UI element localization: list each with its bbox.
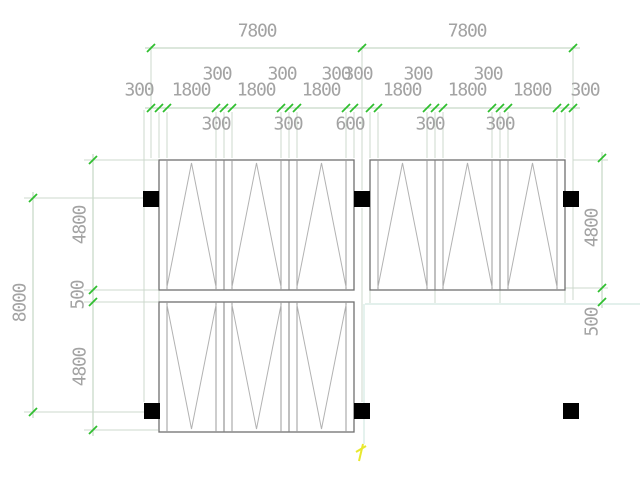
dim-4800-left-bottom: 4800 [70,347,91,386]
formwork-plan-svg: 7800780030030030030030030030018001800180… [0,0,640,480]
dim-7800-right: 7800 [448,21,487,42]
dim-1800: 1800 [172,80,211,101]
dim-500-right: 500 [582,307,603,336]
dim-600-rowC: 600 [336,114,365,135]
dim-500-left: 500 [68,280,89,309]
panel-bracing-triangle [443,163,492,287]
panel-bracing-triangle [232,305,281,429]
dim-7800-left: 7800 [238,21,277,42]
dim-300-rowB: 300 [125,80,154,101]
panel-bracing-triangle [508,163,557,287]
dim-300-rowC: 300 [486,114,515,135]
column-marker [563,191,579,207]
dim-4800-right: 4800 [582,208,603,247]
dim-300-rowA: 300 [344,64,373,85]
dim-8000-left: 8000 [10,283,31,322]
dim-4800-left-top: 4800 [70,205,91,244]
column-marker [354,191,370,207]
column-marker [563,403,579,419]
column-marker [354,403,370,419]
panel-bracing-triangle [378,163,427,287]
dim-1800: 1800 [383,80,422,101]
dim-1800: 1800 [302,80,341,101]
panel-bracing-triangle [297,163,346,287]
dim-1800: 1800 [237,80,276,101]
column-marker [144,403,160,419]
panel-bracing-triangle [167,305,216,429]
panel-bracing-triangle [232,163,281,287]
dim-300-rowC: 300 [416,114,445,135]
dim-300-rowC: 300 [274,114,303,135]
panel-bracing-triangle [167,163,216,287]
dim-300-rowC: 300 [202,114,231,135]
cad-drawing-canvas: 7800780030030030030030030030018001800180… [0,0,640,480]
dim-1800: 1800 [513,80,552,101]
dim-300-rowB: 300 [571,80,600,101]
dim-1800: 1800 [448,80,487,101]
yellow-line [359,444,363,461]
panel-bracing-triangle [297,305,346,429]
column-marker [143,191,159,207]
